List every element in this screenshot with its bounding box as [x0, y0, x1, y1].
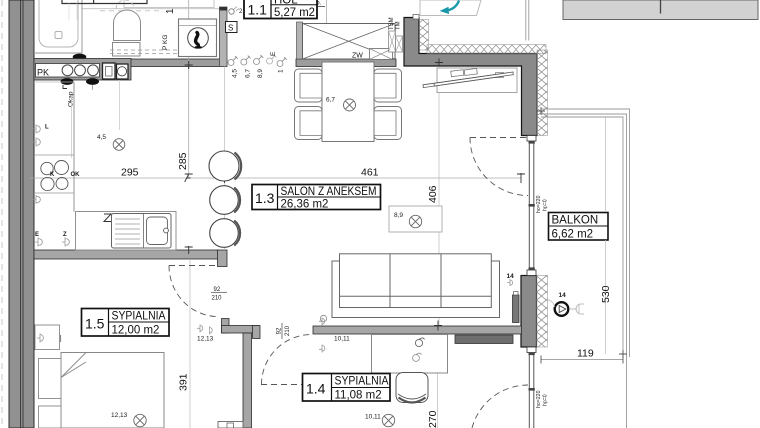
svg-text:26,36 m2: 26,36 m2 — [281, 199, 329, 211]
svg-text:8,9: 8,9 — [394, 212, 403, 219]
svg-text:461: 461 — [361, 167, 379, 179]
svg-text:E: E — [270, 51, 277, 56]
svg-text:92: 92 — [277, 327, 283, 334]
svg-text:E: E — [35, 232, 39, 238]
svg-text:ZW: ZW — [352, 53, 363, 60]
svg-text:TM: TM — [396, 21, 402, 30]
svg-text:4,5: 4,5 — [232, 69, 239, 78]
svg-text:270: 270 — [427, 410, 439, 428]
svg-text:hp=0: hp=0 — [543, 394, 549, 406]
svg-text:14: 14 — [559, 292, 567, 299]
svg-text:11,08 m2: 11,08 m2 — [335, 390, 382, 402]
svg-text:SYPIALNIA: SYPIALNIA — [335, 376, 389, 388]
svg-text:SYPIALNIA: SYPIALNIA — [112, 311, 166, 323]
svg-text:ho=220: ho=220 — [536, 195, 542, 213]
svg-text:210: 210 — [212, 296, 223, 302]
svg-text:hp=0: hp=0 — [543, 199, 549, 211]
svg-text:5,27 m2: 5,27 m2 — [274, 7, 315, 19]
svg-text:OK: OK — [71, 172, 81, 178]
svg-text:12,13: 12,13 — [111, 412, 128, 419]
svg-text:1: 1 — [165, 8, 176, 14]
svg-text:10,11: 10,11 — [365, 414, 381, 421]
svg-text:12,00 m2: 12,00 m2 — [112, 325, 160, 337]
svg-text:BALKON: BALKON — [552, 215, 599, 227]
svg-text:14: 14 — [507, 273, 515, 280]
svg-text:K: K — [50, 172, 55, 178]
svg-text:L: L — [45, 125, 49, 131]
svg-text:8,9: 8,9 — [257, 69, 264, 78]
svg-text:119: 119 — [577, 348, 594, 360]
svg-text:SALON Z ANEKSEM: SALON Z ANEKSEM — [281, 186, 377, 198]
svg-text:406: 406 — [427, 185, 439, 203]
svg-text:ho=220: ho=220 — [536, 390, 542, 408]
svg-text:6,7: 6,7 — [245, 69, 252, 78]
svg-text:TSM: TSM — [389, 17, 395, 30]
svg-text:4,5: 4,5 — [97, 134, 106, 141]
svg-text:295: 295 — [121, 167, 139, 179]
svg-text:12,13: 12,13 — [197, 336, 214, 343]
svg-text:P KG: P KG — [162, 35, 169, 50]
svg-text:210: 210 — [285, 325, 291, 336]
svg-text:PK: PK — [37, 68, 49, 78]
svg-text:HOL: HOL — [274, 0, 298, 6]
svg-text:6,7: 6,7 — [326, 97, 335, 104]
svg-text:1.5: 1.5 — [85, 316, 105, 332]
svg-text:1.1: 1.1 — [248, 2, 268, 18]
svg-text:6,62 m2: 6,62 m2 — [552, 229, 594, 241]
svg-text:1.4: 1.4 — [306, 381, 326, 397]
svg-text:530: 530 — [600, 285, 612, 303]
svg-text:Z: Z — [63, 232, 67, 238]
svg-text:285: 285 — [177, 152, 189, 170]
svg-text:391: 391 — [178, 373, 190, 391]
svg-text:1: 1 — [278, 69, 285, 73]
svg-text:Okap: Okap — [68, 91, 75, 107]
svg-text:1.3: 1.3 — [255, 190, 275, 206]
svg-text:10,11: 10,11 — [334, 336, 350, 343]
svg-text:S: S — [228, 24, 233, 33]
